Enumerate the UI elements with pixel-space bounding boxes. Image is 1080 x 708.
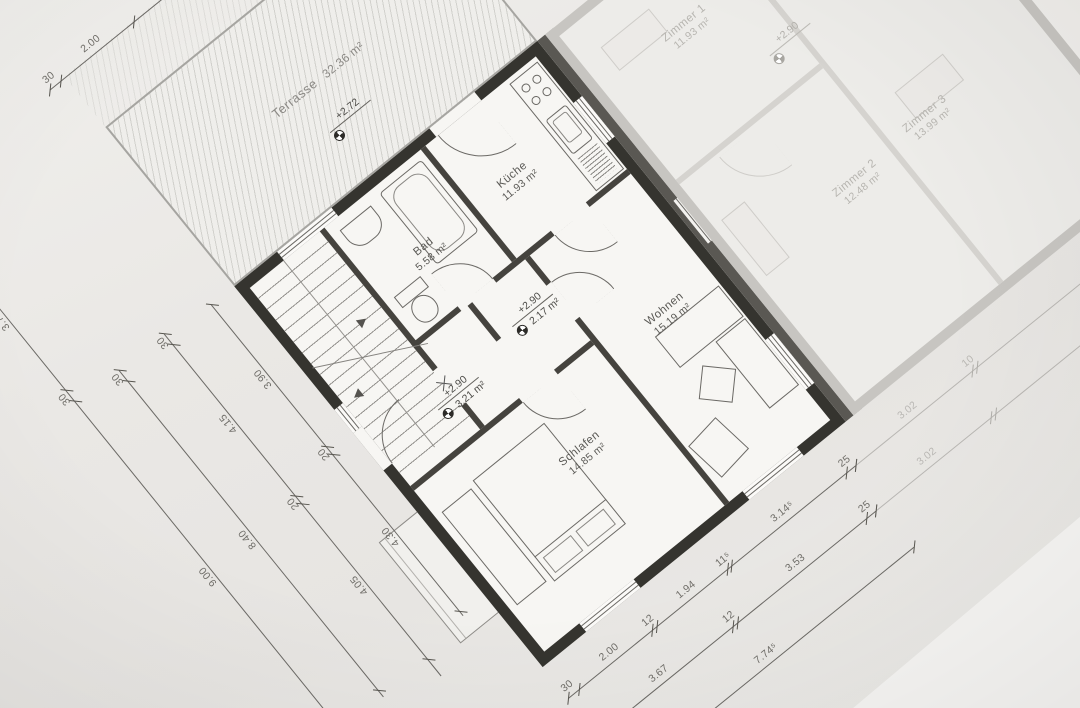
dim-label: 30 bbox=[44, 375, 86, 423]
kitchen-door-arc bbox=[555, 207, 618, 270]
dim-tick-icon bbox=[737, 616, 739, 629]
dim-tick-icon bbox=[866, 512, 868, 525]
wall-bedroom bbox=[554, 340, 594, 374]
dim-label: 4.05 bbox=[338, 561, 380, 609]
dim-tick-icon bbox=[875, 504, 877, 517]
dim-label: 11⁵ bbox=[699, 539, 747, 581]
neighbor-furniture bbox=[721, 201, 790, 276]
dim-label: 9.00 bbox=[187, 553, 229, 601]
dim-label: 4.15 bbox=[207, 400, 249, 448]
dim-tick-icon bbox=[578, 683, 580, 696]
dim-tick-icon bbox=[846, 466, 848, 479]
dim-label: 3.53 bbox=[771, 542, 819, 584]
dim-tick-icon bbox=[206, 303, 219, 305]
bedroom-door-arc bbox=[523, 374, 586, 437]
dim-label: 2.00 bbox=[585, 631, 633, 673]
neighbor-furniture bbox=[601, 9, 668, 71]
dim-label: 3.02 bbox=[883, 389, 931, 431]
dim-label: 3.75 bbox=[0, 297, 22, 345]
window-bedroom bbox=[579, 579, 640, 632]
dim-label: 3.67 bbox=[635, 653, 683, 695]
dim-tick-icon bbox=[567, 692, 569, 705]
dim-tick-icon bbox=[49, 83, 51, 96]
wall-living bbox=[525, 256, 551, 286]
dim-tick-icon bbox=[60, 75, 62, 88]
dim-tick-icon bbox=[656, 620, 658, 633]
dim-tick-icon bbox=[971, 365, 973, 378]
dim-label: 30 bbox=[142, 319, 184, 367]
dim-tick-icon bbox=[990, 411, 992, 424]
floor-plan-photo: Terrasse 32.36 m² +2.72 Zimmer 1 11.93 m… bbox=[0, 0, 1080, 708]
dim-tick-icon bbox=[976, 361, 978, 374]
dim-tick-icon bbox=[731, 560, 733, 573]
dim-label: 7.74⁵ bbox=[742, 633, 790, 675]
dim-tick-icon bbox=[855, 459, 857, 472]
dim-label: 3.14⁵ bbox=[758, 491, 806, 533]
wall-hall-divider bbox=[468, 302, 502, 342]
dim-tick-icon bbox=[422, 658, 435, 660]
living-door-arc bbox=[551, 254, 614, 317]
blueprint-sheet: Terrasse 32.36 m² +2.72 Zimmer 1 11.93 m… bbox=[0, 0, 1080, 708]
dim-tick-icon bbox=[651, 624, 653, 637]
dim-label: 12 bbox=[705, 596, 753, 638]
dim-label: 3.02 bbox=[903, 435, 951, 477]
dim-label: 10 bbox=[944, 340, 992, 382]
dim-tick-icon bbox=[732, 620, 734, 633]
dim-label: 3.90 bbox=[242, 355, 284, 403]
dim-label: 8.40 bbox=[226, 515, 268, 563]
coffee-table bbox=[699, 365, 736, 402]
stair-arrow-icon bbox=[351, 388, 364, 401]
dim-tick-icon bbox=[373, 689, 386, 691]
stair-arrow-icon bbox=[356, 315, 369, 328]
dim-chain-bottom-3: 7.74⁵ bbox=[631, 547, 915, 708]
dim-tick-icon bbox=[727, 563, 729, 576]
stair-break-line bbox=[312, 343, 428, 369]
dim-label: 30 bbox=[97, 355, 139, 403]
window-living bbox=[742, 447, 803, 500]
dim-tick-icon bbox=[995, 407, 997, 420]
dim-tick-icon bbox=[913, 540, 915, 553]
washbasin bbox=[340, 205, 389, 252]
